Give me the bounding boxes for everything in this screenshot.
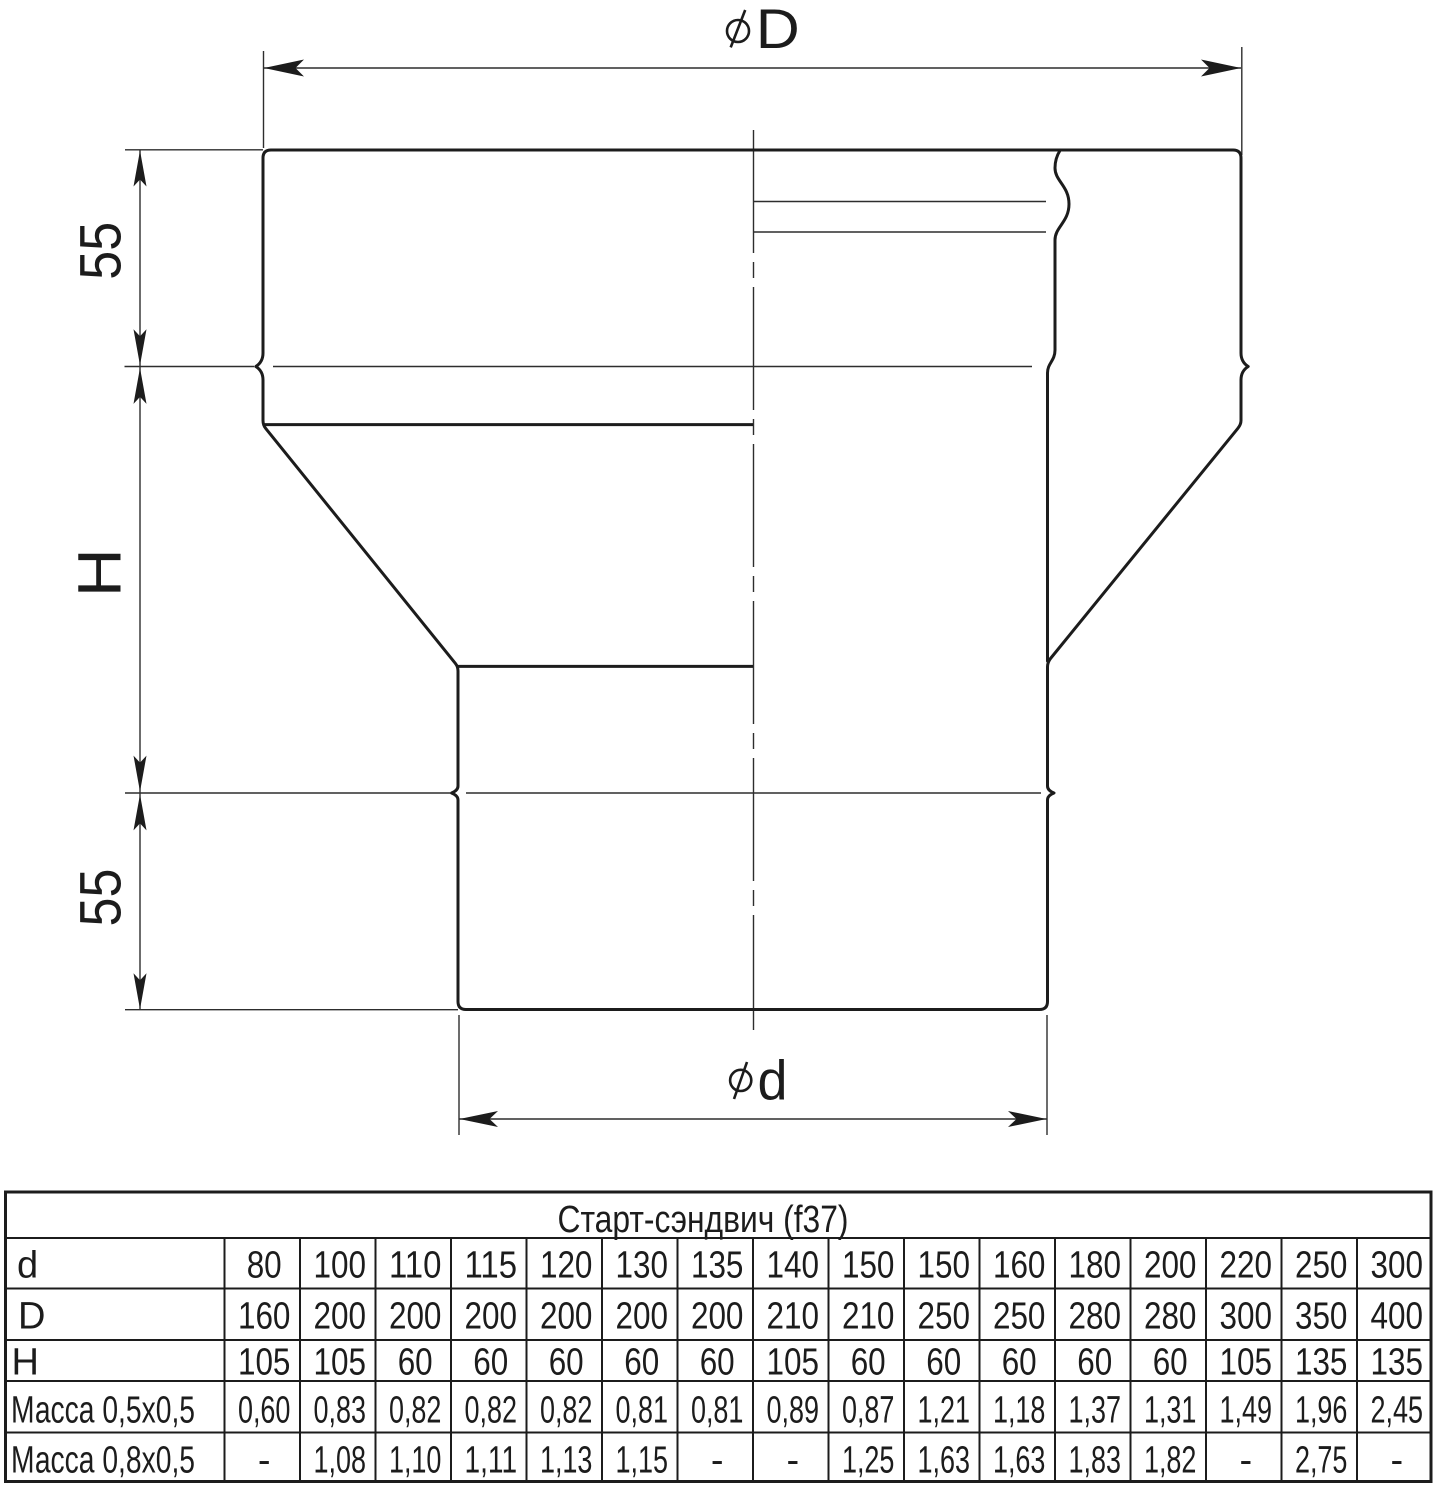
svg-text:H: H: [66, 548, 134, 597]
svg-text:60: 60: [1153, 1342, 1188, 1384]
svg-text:200: 200: [540, 1296, 593, 1338]
svg-text:280: 280: [1144, 1296, 1197, 1338]
svg-text:1,63: 1,63: [918, 1440, 971, 1482]
svg-text:135: 135: [1295, 1342, 1348, 1384]
svg-text:60: 60: [1077, 1342, 1112, 1384]
svg-text:1,37: 1,37: [1069, 1390, 1122, 1432]
svg-text:55: 55: [69, 222, 134, 280]
svg-text:0,60: 0,60: [238, 1390, 291, 1432]
svg-text:140: 140: [767, 1245, 820, 1287]
svg-text:130: 130: [616, 1245, 669, 1287]
svg-text:1,13: 1,13: [540, 1440, 593, 1482]
svg-text:60: 60: [549, 1342, 584, 1384]
svg-text:Старт-сэндвич (f37): Старт-сэндвич (f37): [558, 1199, 849, 1241]
svg-text:1,18: 1,18: [993, 1390, 1046, 1432]
svg-text:200: 200: [389, 1296, 442, 1338]
svg-text:105: 105: [314, 1342, 367, 1384]
svg-text:180: 180: [1069, 1245, 1122, 1287]
svg-text:200: 200: [616, 1296, 669, 1338]
svg-text:250: 250: [918, 1296, 971, 1338]
svg-text:1,96: 1,96: [1295, 1390, 1348, 1432]
svg-text:250: 250: [993, 1296, 1046, 1338]
svg-text:-: -: [1390, 1440, 1403, 1482]
svg-text:350: 350: [1295, 1296, 1348, 1338]
svg-text:-: -: [711, 1440, 724, 1482]
svg-text:160: 160: [238, 1296, 291, 1338]
svg-text:115: 115: [465, 1245, 518, 1287]
svg-text:55: 55: [69, 869, 134, 927]
svg-text:1,11: 1,11: [465, 1440, 518, 1482]
svg-text:210: 210: [842, 1296, 895, 1338]
svg-text:D: D: [756, 0, 800, 60]
svg-text:150: 150: [842, 1245, 895, 1287]
svg-text:1,21: 1,21: [918, 1390, 971, 1432]
svg-text:60: 60: [926, 1342, 961, 1384]
svg-text:210: 210: [767, 1296, 820, 1338]
svg-text:-: -: [1239, 1440, 1252, 1482]
svg-text:-: -: [258, 1440, 271, 1482]
svg-text:220: 220: [1220, 1245, 1273, 1287]
svg-text:200: 200: [465, 1296, 518, 1338]
svg-text:300: 300: [1371, 1245, 1424, 1287]
svg-text:D: D: [18, 1296, 45, 1338]
svg-text:1,25: 1,25: [842, 1440, 895, 1482]
svg-text:1,49: 1,49: [1220, 1390, 1273, 1432]
svg-text:110: 110: [389, 1245, 442, 1287]
svg-text:0,82: 0,82: [389, 1390, 442, 1432]
svg-text:Масса 0,8x0,5: Масса 0,8x0,5: [11, 1440, 195, 1482]
svg-text:80: 80: [247, 1245, 282, 1287]
svg-text:d: d: [758, 1049, 788, 1112]
svg-text:1,31: 1,31: [1144, 1390, 1197, 1432]
svg-text:105: 105: [1220, 1342, 1273, 1384]
svg-text:Масса 0,5x0,5: Масса 0,5x0,5: [11, 1390, 195, 1432]
svg-text:60: 60: [700, 1342, 735, 1384]
svg-text:1,82: 1,82: [1144, 1440, 1197, 1482]
svg-text:160: 160: [993, 1245, 1046, 1287]
svg-text:150: 150: [918, 1245, 971, 1287]
svg-text:60: 60: [473, 1342, 508, 1384]
svg-text:0,81: 0,81: [691, 1390, 744, 1432]
svg-text:135: 135: [1371, 1342, 1424, 1384]
svg-text:1,83: 1,83: [1069, 1440, 1122, 1482]
svg-text:200: 200: [1144, 1245, 1197, 1287]
svg-text:0,83: 0,83: [314, 1390, 367, 1432]
svg-text:135: 135: [691, 1245, 744, 1287]
svg-text:120: 120: [540, 1245, 593, 1287]
svg-text:60: 60: [624, 1342, 659, 1384]
svg-text:60: 60: [1002, 1342, 1037, 1384]
svg-text:60: 60: [851, 1342, 886, 1384]
svg-text:d: d: [17, 1245, 38, 1287]
svg-text:0,82: 0,82: [465, 1390, 518, 1432]
svg-text:400: 400: [1371, 1296, 1424, 1338]
svg-text:60: 60: [398, 1342, 433, 1384]
svg-text:H: H: [12, 1342, 39, 1384]
svg-text:200: 200: [691, 1296, 744, 1338]
svg-text:1,63: 1,63: [993, 1440, 1046, 1482]
svg-text:105: 105: [767, 1342, 820, 1384]
svg-text:105: 105: [238, 1342, 291, 1384]
svg-text:1,08: 1,08: [314, 1440, 367, 1482]
svg-text:2,45: 2,45: [1371, 1390, 1424, 1432]
svg-text:280: 280: [1069, 1296, 1122, 1338]
svg-text:-: -: [786, 1440, 799, 1482]
svg-text:100: 100: [314, 1245, 367, 1287]
svg-text:300: 300: [1220, 1296, 1273, 1338]
svg-text:250: 250: [1295, 1245, 1348, 1287]
svg-text:0,81: 0,81: [616, 1390, 669, 1432]
svg-text:1,15: 1,15: [616, 1440, 669, 1482]
svg-text:0,87: 0,87: [842, 1390, 895, 1432]
svg-text:1,10: 1,10: [389, 1440, 442, 1482]
svg-text:2,75: 2,75: [1295, 1440, 1348, 1482]
svg-text:0,89: 0,89: [767, 1390, 820, 1432]
svg-text:0,82: 0,82: [540, 1390, 593, 1432]
svg-text:200: 200: [314, 1296, 367, 1338]
